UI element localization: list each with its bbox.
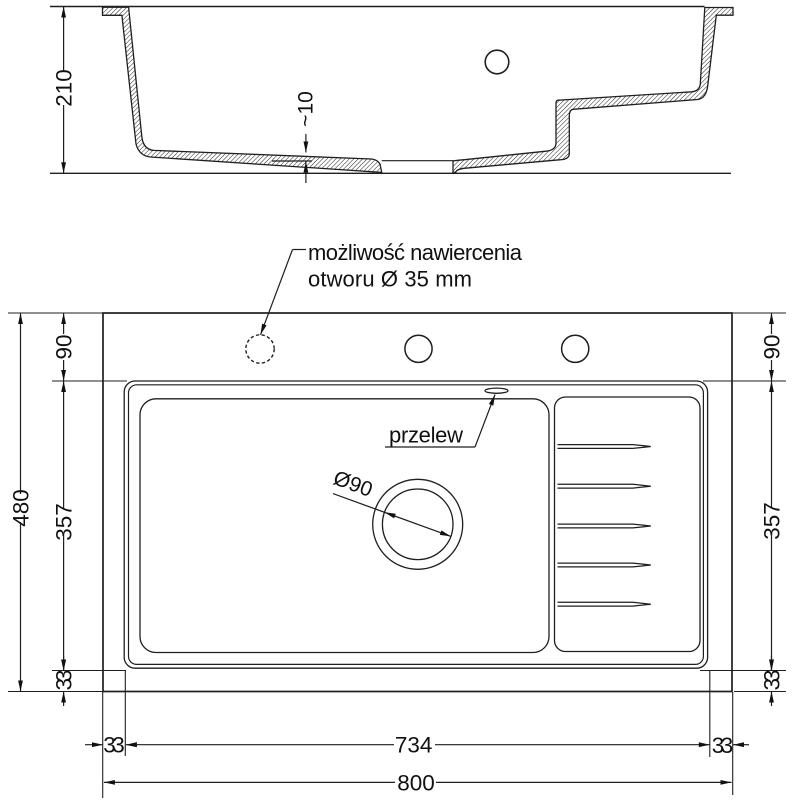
svg-text:734: 734 — [395, 733, 433, 758]
svg-text:357: 357 — [760, 502, 785, 540]
svg-text:800: 800 — [397, 770, 435, 795]
svg-text:przelew: przelew — [389, 423, 463, 448]
svg-text:33: 33 — [760, 670, 785, 691]
svg-text:90: 90 — [52, 334, 77, 359]
svg-text:357: 357 — [52, 503, 77, 541]
svg-text:33: 33 — [712, 733, 734, 758]
svg-text:otworu Ø 35 mm: otworu Ø 35 mm — [308, 267, 472, 292]
svg-text:210: 210 — [52, 69, 77, 107]
svg-text:33: 33 — [103, 733, 125, 758]
svg-text:33: 33 — [52, 670, 77, 691]
svg-text:480: 480 — [9, 489, 34, 527]
svg-text:Ø90: Ø90 — [330, 467, 375, 502]
svg-text:90: 90 — [760, 334, 785, 359]
svg-text:możliwość nawiercenia: możliwość nawiercenia — [308, 240, 523, 265]
svg-text:~10: ~10 — [295, 91, 318, 127]
